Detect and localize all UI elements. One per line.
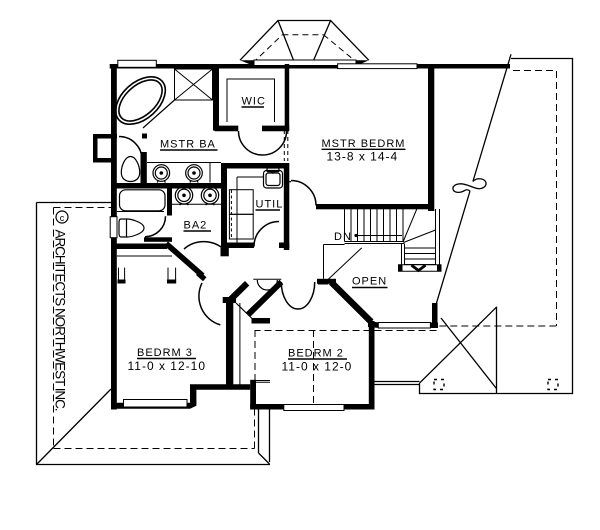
svg-text:BEDRM 3: BEDRM 3 (137, 347, 193, 359)
svg-text:UTIL: UTIL (256, 199, 284, 211)
svg-text:ARCHITECTS NORTHWEST INC.: ARCHITECTS NORTHWEST INC. (53, 230, 68, 411)
svg-text:11-0 x 12-0: 11-0 x 12-0 (282, 360, 353, 374)
svg-text:MSTR BEDRM: MSTR BEDRM (322, 138, 406, 150)
svg-text:BEDRM 2: BEDRM 2 (288, 348, 344, 360)
svg-text:DN: DN (334, 231, 352, 243)
svg-text:MSTR BA: MSTR BA (160, 139, 216, 151)
svg-text:13-8 x 14-4: 13-8 x 14-4 (327, 150, 399, 164)
svg-text:c: c (60, 213, 65, 223)
svg-text:WIC: WIC (242, 96, 266, 108)
svg-text:OPEN: OPEN (352, 276, 387, 288)
svg-text:11-0 x 12-10: 11-0 x 12-10 (128, 359, 207, 373)
svg-text:BA2: BA2 (184, 220, 208, 232)
